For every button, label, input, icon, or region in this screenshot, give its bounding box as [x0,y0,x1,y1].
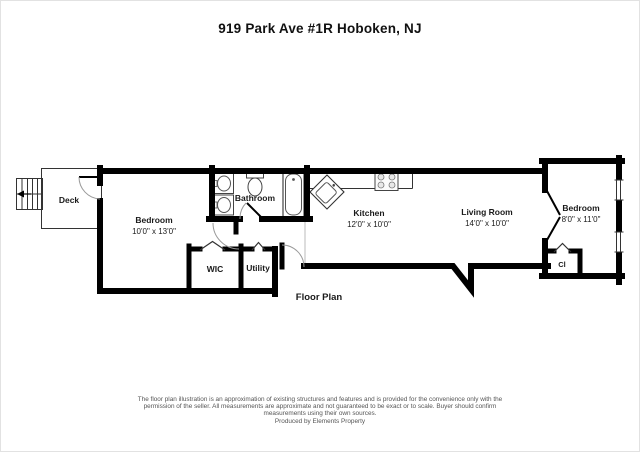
floor-plan-drawing: Deck Bedroom 10'0" x 13'0" Bathroom WIC … [1,1,640,452]
credit-line: Produced by Elements Property [1,418,639,425]
plan-caption: Floor Plan [296,292,343,303]
room-dims-bedroom2: 8'0" x 11'0" [562,215,601,224]
burner [378,182,384,188]
window-gap [615,232,624,252]
window-icon [615,180,624,200]
room-dims-kitchen: 12'0" x 10'0" [347,220,391,229]
disclaimer-line-2: permission of the seller. All measuremen… [1,403,639,410]
floor-plan-page: 919 Park Ave #1R Hoboken, NJ [0,0,640,452]
burner [389,174,395,180]
room-label-bathroom: Bathroom [235,193,276,203]
stairs-direction-arrow [17,191,24,198]
bathtub-icon [283,172,304,218]
stove-icon [375,172,398,191]
room-label-bedroom1: Bedroom [135,215,173,225]
room-dims-living: 14'0" x 10'0" [465,219,509,228]
window-icon [615,232,624,252]
disclaimer-line-3: measurements using their own sources. [1,410,639,417]
interior-walls [189,219,580,291]
room-label-wic: WIC [207,264,224,274]
disclaimer-line-1: The floor plan illustration is an approx… [1,396,639,403]
stove-body [375,172,398,191]
room-label-kitchen: Kitchen [353,208,384,218]
tub-drain [292,178,295,181]
kitchen-sink-icon [310,175,344,209]
bathroom-sink-icon [214,174,234,194]
window-gap [615,180,624,200]
bathroom-sink-icon [214,195,234,215]
burner [389,182,395,188]
stairs-icon [17,179,43,210]
burner [378,174,384,180]
folding-door-icon [200,242,571,253]
room-label-closet: Cl [558,260,566,269]
room-dims-bedroom1: 10'0" x 13'0" [132,227,176,236]
room-label-deck: Deck [59,195,80,205]
disclaimer: The floor plan illustration is an approx… [1,396,639,425]
room-label-bedroom2: Bedroom [562,203,600,213]
room-label-living: Living Room [461,207,513,217]
room-label-utility: Utility [246,263,270,273]
